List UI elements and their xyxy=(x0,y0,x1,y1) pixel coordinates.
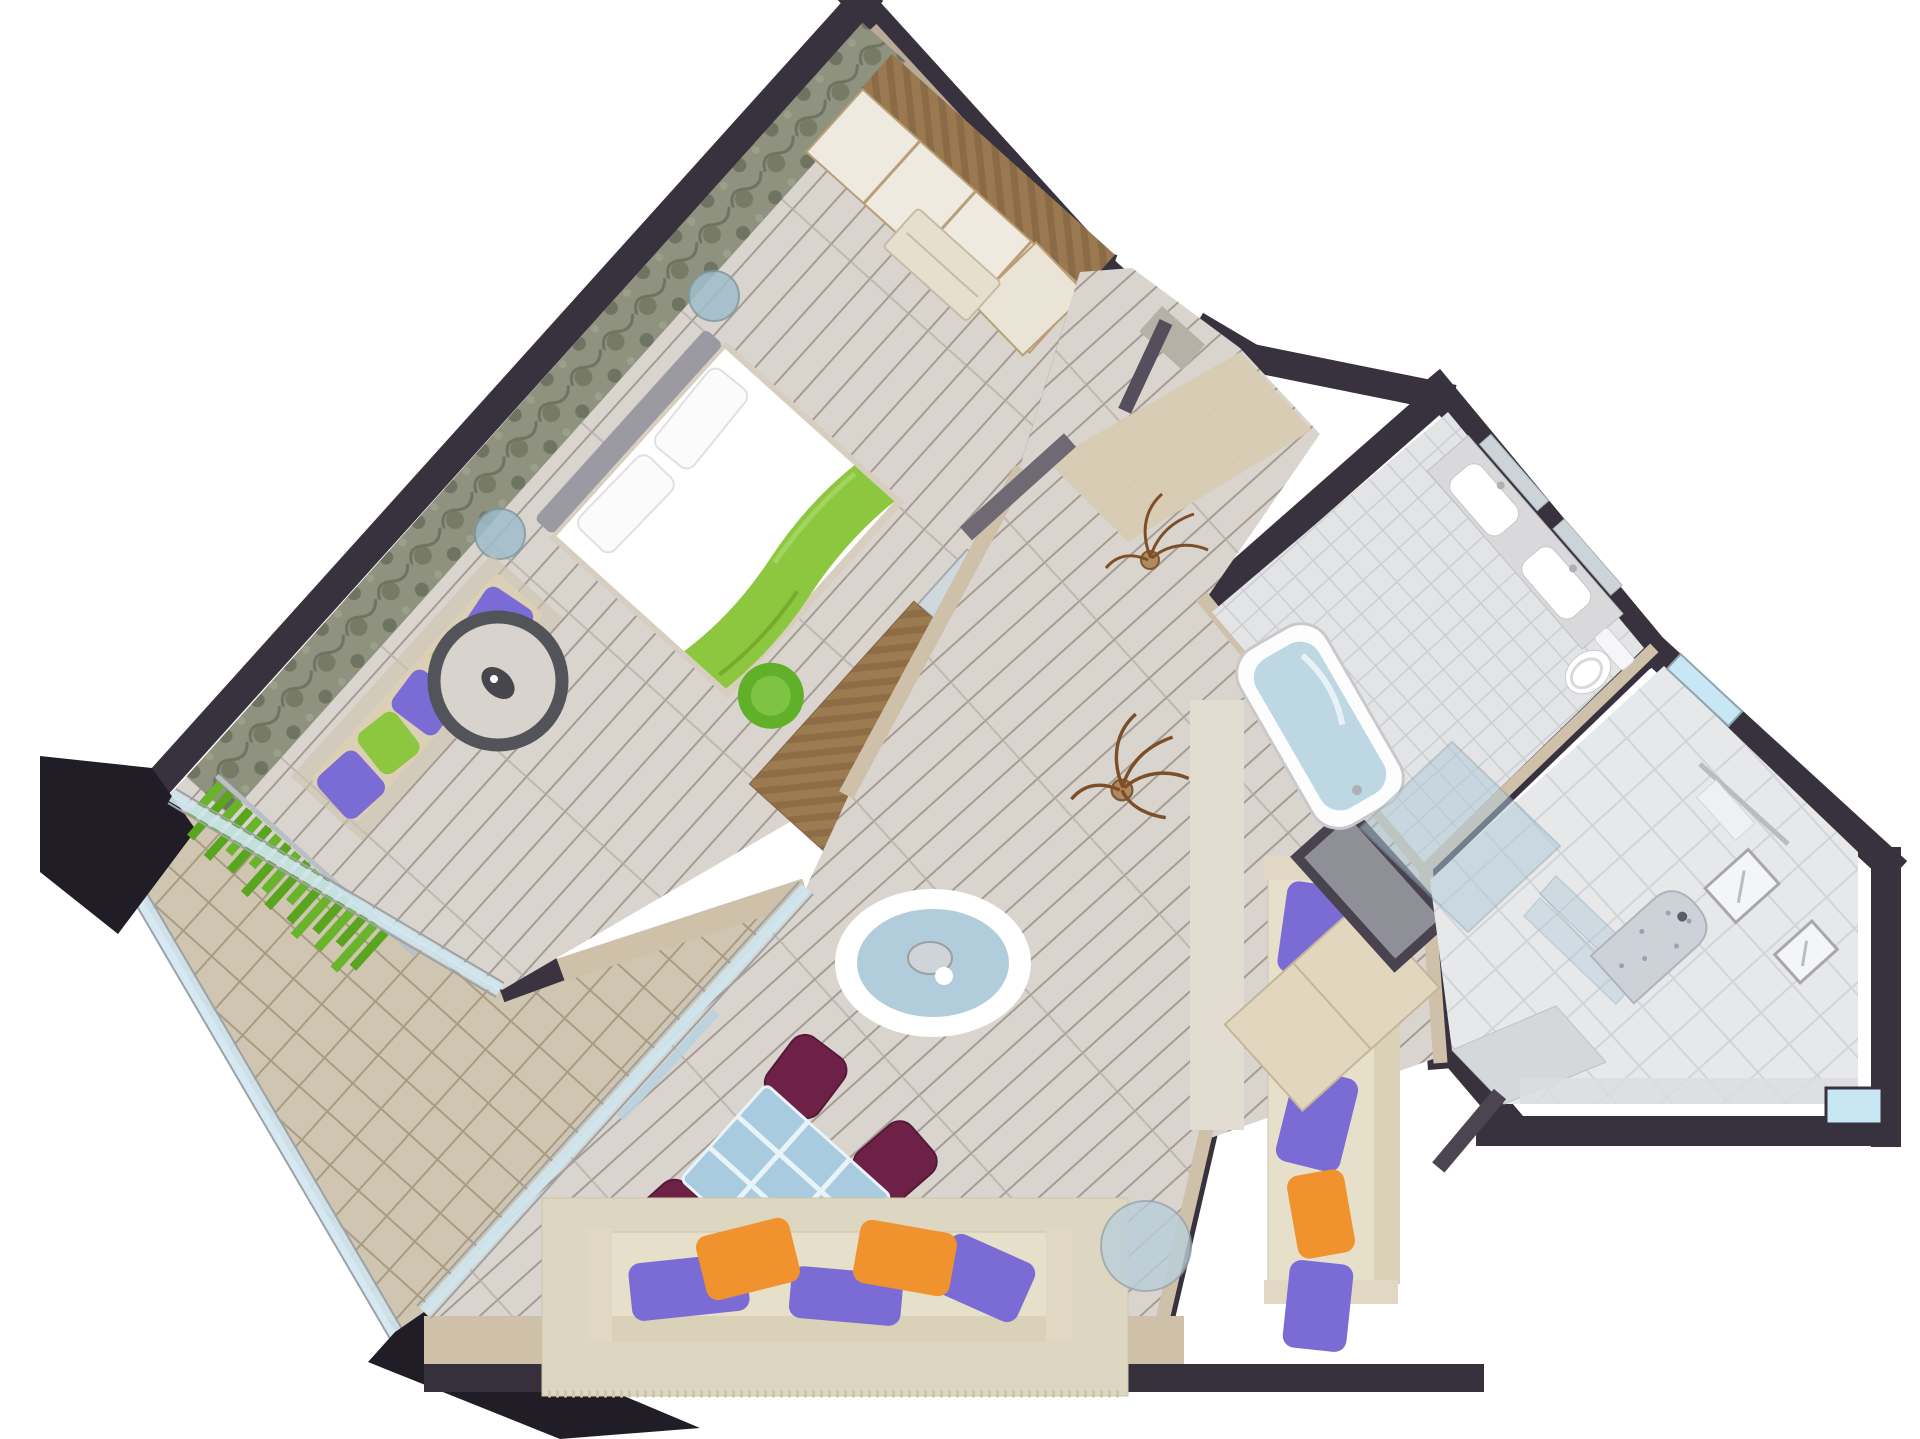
coffee-table xyxy=(835,889,1031,1037)
sofa-pillow-purple xyxy=(1282,1259,1355,1353)
floor-plan-stage xyxy=(0,0,1920,1439)
runner-rug xyxy=(1190,700,1244,1130)
window xyxy=(1826,1088,1882,1124)
round-rug xyxy=(434,617,562,745)
tiled-step xyxy=(1520,1078,1858,1104)
nightstand xyxy=(475,509,525,559)
floor-plan-svg xyxy=(0,0,1920,1439)
nightstand xyxy=(689,271,739,321)
sofa-arm xyxy=(586,1228,612,1342)
sofa-arm xyxy=(1046,1228,1072,1342)
sofa-bottom xyxy=(542,1198,1191,1396)
side-table-glass xyxy=(1101,1201,1191,1291)
